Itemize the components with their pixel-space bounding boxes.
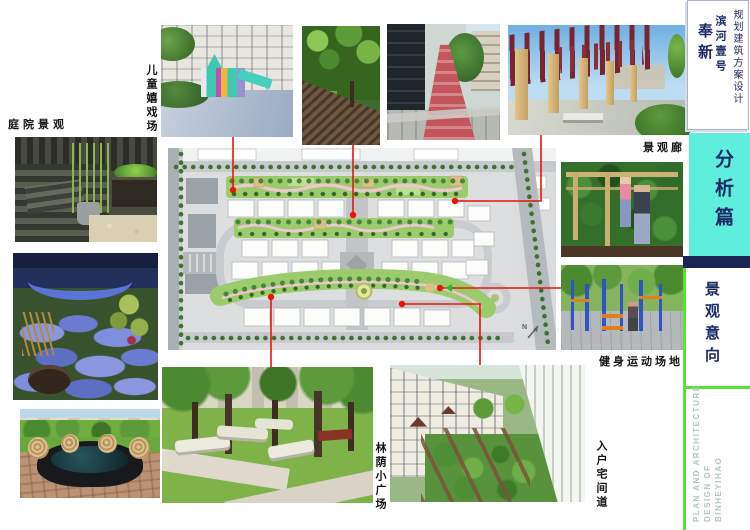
stone-bench bbox=[174, 435, 230, 453]
photo-townhouse-path bbox=[390, 365, 585, 502]
person bbox=[628, 302, 638, 331]
shrubs bbox=[635, 104, 690, 135]
pebbles bbox=[89, 215, 157, 242]
post bbox=[350, 81, 354, 107]
pole bbox=[571, 280, 575, 329]
red-bench bbox=[318, 428, 352, 440]
photo-blue-garden bbox=[13, 253, 158, 400]
pole bbox=[620, 284, 624, 332]
label-courtyard: 庭院景观 bbox=[8, 116, 68, 132]
divider-bar bbox=[683, 256, 750, 268]
dark-bg bbox=[13, 253, 158, 268]
bar bbox=[602, 314, 623, 317]
pole bbox=[585, 284, 589, 332]
pole bbox=[659, 284, 663, 332]
column bbox=[606, 61, 614, 105]
photo-red-path bbox=[387, 24, 500, 140]
photo-tree-boardwalk bbox=[302, 26, 380, 145]
accent-line bbox=[683, 268, 686, 386]
photo-children-playground bbox=[161, 25, 293, 137]
shrub bbox=[103, 285, 155, 350]
footer-line-3: BINHEYIHAO bbox=[713, 378, 724, 522]
trees-mid bbox=[460, 392, 538, 433]
pole bbox=[602, 279, 606, 332]
spiral-ball bbox=[61, 434, 79, 453]
section-tab-analysis: 分析篇 bbox=[689, 133, 750, 256]
section-tab-label: 分析篇 bbox=[709, 149, 736, 236]
planter-box bbox=[112, 177, 157, 207]
photo-pergola bbox=[508, 25, 690, 135]
photo-fountain bbox=[20, 409, 160, 498]
photo-courtyard bbox=[15, 137, 157, 242]
frame-post bbox=[573, 172, 578, 240]
bar bbox=[602, 326, 623, 329]
pole bbox=[639, 280, 643, 331]
spiral-ball bbox=[129, 437, 150, 458]
person-hanging bbox=[620, 177, 631, 226]
stone-pot bbox=[28, 365, 72, 394]
label-children-play: 儿童嬉戏场 bbox=[143, 64, 159, 134]
title-doc-type: 规划建筑方案设计 bbox=[729, 9, 744, 105]
frame-post bbox=[605, 172, 610, 246]
compass-label: N bbox=[522, 324, 527, 331]
presentation-board: N bbox=[0, 0, 750, 530]
bench bbox=[563, 113, 603, 120]
photo-fitness bbox=[561, 265, 683, 350]
trunk bbox=[348, 402, 354, 451]
column bbox=[548, 54, 559, 113]
stone-bench bbox=[255, 418, 293, 429]
column bbox=[630, 65, 637, 102]
footer-line-1: PLAN AND ARCHITECTURE bbox=[691, 378, 702, 522]
label-fitness: 健身运动场地 bbox=[565, 353, 683, 369]
mulch bbox=[561, 246, 683, 257]
spiral-ball bbox=[98, 434, 116, 453]
person-standing bbox=[634, 185, 650, 244]
title-project: 滨河壹号 bbox=[712, 15, 728, 75]
section-heading-landscape: 景观意向 bbox=[701, 281, 722, 369]
footer-english-text: PLAN AND ARCHITECTURE DESIGN OF BINHEYIH… bbox=[689, 378, 749, 530]
footer-line-2: DESIGN OF bbox=[702, 378, 713, 522]
title-block: 奉新 滨河壹号 规划建筑方案设计 bbox=[687, 0, 749, 130]
site-plan-svg: N bbox=[168, 148, 556, 350]
site-plan-illustration: N bbox=[168, 148, 556, 350]
photo-tree-plaza bbox=[162, 367, 373, 503]
bar bbox=[571, 299, 589, 302]
column bbox=[579, 58, 588, 109]
label-shaded-plaza: 林荫小广场 bbox=[372, 442, 388, 512]
tree-right bbox=[668, 34, 686, 78]
bar bbox=[639, 296, 662, 299]
golden-grass bbox=[22, 312, 54, 356]
garden-paths bbox=[421, 428, 530, 502]
water bbox=[51, 446, 129, 473]
label-gallery: 景观廊 bbox=[630, 139, 685, 155]
trunk bbox=[314, 391, 322, 456]
column bbox=[515, 49, 528, 119]
label-entry-path: 入户宅间道 bbox=[593, 440, 609, 510]
photo-green-wall bbox=[561, 162, 683, 257]
